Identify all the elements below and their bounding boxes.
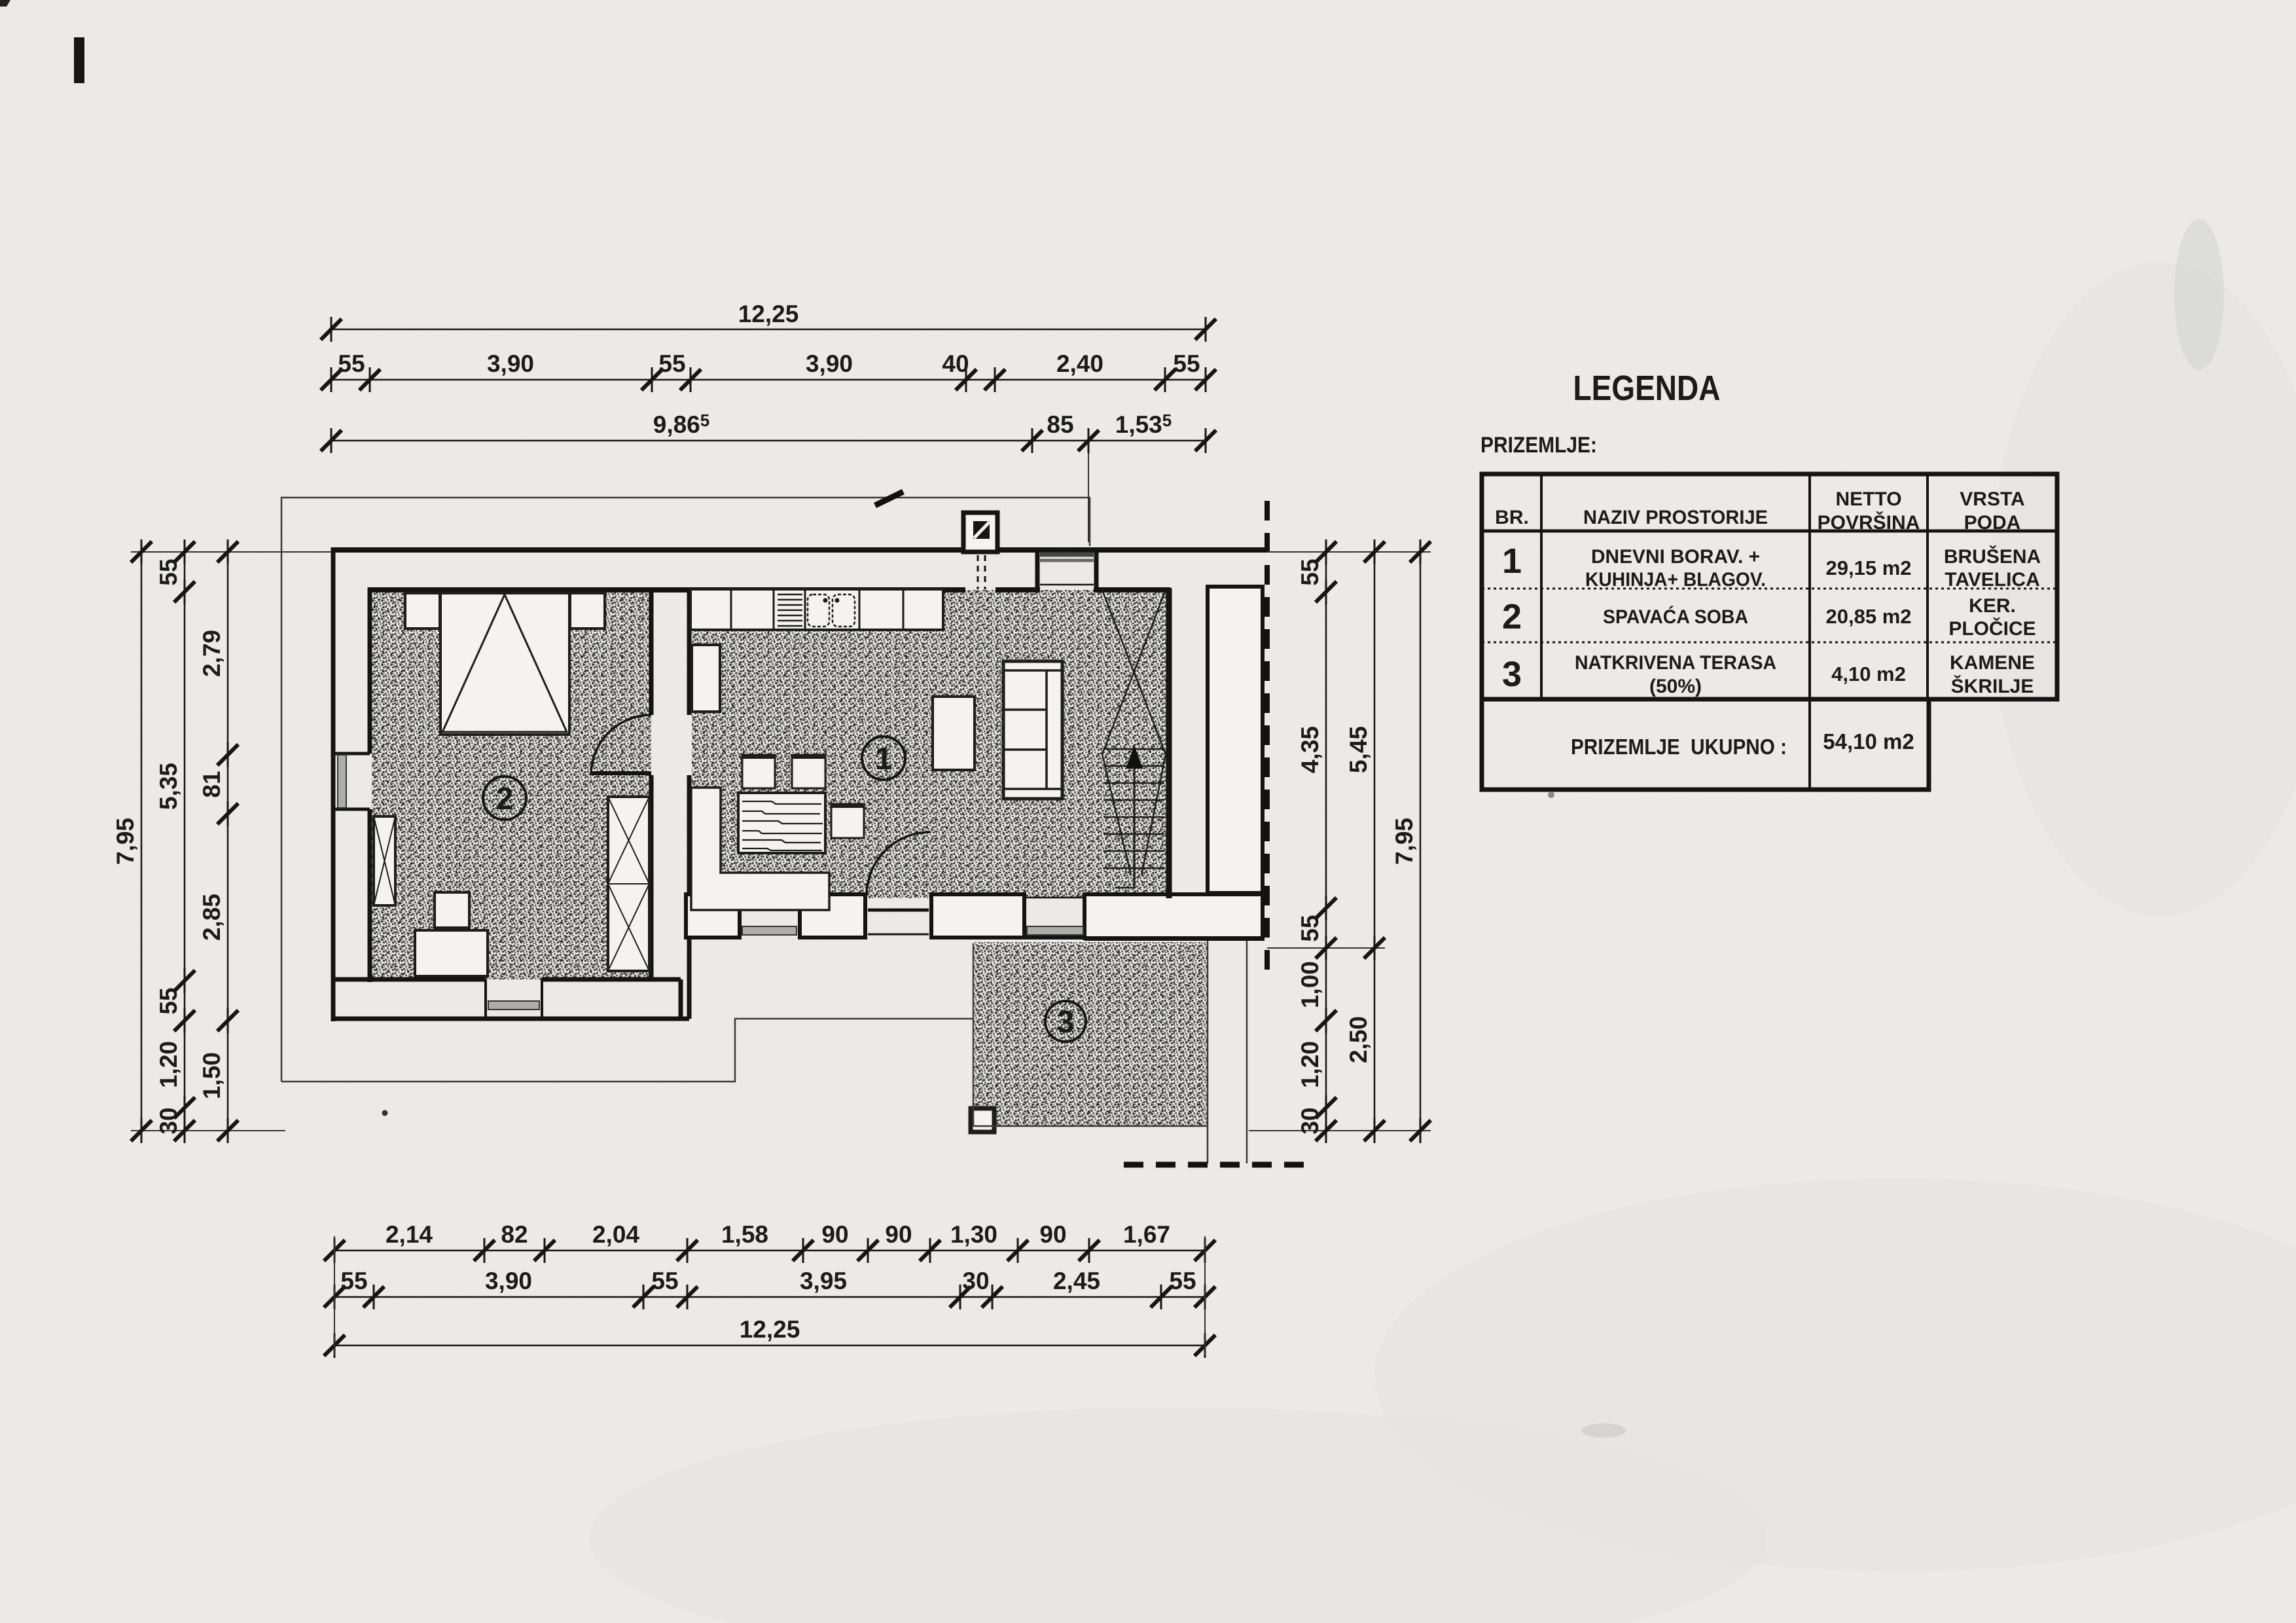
svg-text:55: 55 — [1173, 350, 1200, 377]
svg-text:2: 2 — [1502, 597, 1522, 636]
svg-text:90: 90 — [1039, 1221, 1066, 1248]
svg-text:KUHINJA+ BLAGOV.: KUHINJA+ BLAGOV. — [1585, 569, 1766, 591]
svg-text:30: 30 — [1297, 1107, 1323, 1134]
svg-text:55: 55 — [1169, 1267, 1196, 1294]
svg-text:55: 55 — [338, 350, 365, 377]
svg-text:BRUŠENA: BRUŠENA — [1944, 545, 2041, 568]
svg-text:2,85: 2,85 — [198, 894, 225, 941]
svg-text:3: 3 — [1502, 655, 1522, 694]
svg-text:3: 3 — [1057, 1005, 1075, 1040]
svg-text:55: 55 — [651, 1267, 678, 1294]
svg-text:55: 55 — [340, 1267, 367, 1294]
svg-text:2,79: 2,79 — [198, 630, 225, 677]
svg-text:2,50: 2,50 — [1345, 1016, 1372, 1063]
svg-text:2,14: 2,14 — [386, 1221, 433, 1248]
svg-text:2,04: 2,04 — [592, 1221, 639, 1248]
svg-text:5,45: 5,45 — [1345, 726, 1372, 773]
svg-text:PLOČICE: PLOČICE — [1948, 617, 2036, 640]
svg-text:BR.: BR. — [1495, 507, 1529, 528]
svg-text:85: 85 — [1047, 411, 1073, 438]
svg-text:NATKRIVENA TERASA: NATKRIVENA TERASA — [1575, 652, 1776, 674]
svg-text:3,90: 3,90 — [487, 350, 534, 377]
svg-text:12,25: 12,25 — [738, 301, 799, 327]
svg-text:5,35: 5,35 — [155, 763, 182, 810]
svg-text:55: 55 — [658, 350, 685, 377]
svg-text:1,58: 1,58 — [721, 1221, 768, 1248]
svg-text:90: 90 — [885, 1221, 912, 1248]
svg-text:4,35: 4,35 — [1297, 726, 1323, 773]
svg-text:PRIZEMLJE:: PRIZEMLJE: — [1480, 433, 1597, 458]
svg-text:7,95: 7,95 — [1391, 818, 1418, 865]
svg-text:SPAVAĆA SOBA: SPAVAĆA SOBA — [1603, 606, 1748, 628]
svg-text:1,50: 1,50 — [198, 1052, 225, 1099]
svg-text:NAZIV PROSTORIJE: NAZIV PROSTORIJE — [1583, 507, 1768, 528]
svg-text:29,15 m2: 29,15 m2 — [1826, 556, 1912, 579]
svg-text:POVRŠINA: POVRŠINA — [1818, 511, 1920, 534]
svg-text:12,25: 12,25 — [740, 1316, 800, 1343]
svg-text:1,30: 1,30 — [950, 1221, 997, 1248]
svg-text:1: 1 — [875, 742, 893, 776]
svg-text:90: 90 — [821, 1221, 848, 1248]
svg-text:2,40: 2,40 — [1056, 350, 1103, 377]
svg-text:3,90: 3,90 — [806, 350, 853, 377]
svg-text:3,90: 3,90 — [485, 1267, 532, 1294]
svg-text:7,95: 7,95 — [112, 818, 139, 865]
svg-text:82: 82 — [501, 1221, 528, 1248]
svg-text:30: 30 — [962, 1267, 989, 1294]
svg-text:KER.: KER. — [1969, 595, 2016, 617]
svg-text:81: 81 — [198, 771, 225, 797]
svg-text:2: 2 — [496, 782, 514, 816]
svg-text:55: 55 — [155, 987, 182, 1014]
svg-text:KAMENE: KAMENE — [1950, 652, 2035, 674]
svg-text:VRSTA: VRSTA — [1960, 488, 2024, 510]
svg-text:4,10 m2: 4,10 m2 — [1831, 663, 1906, 685]
svg-text:1,67: 1,67 — [1123, 1221, 1170, 1248]
svg-text:(50%): (50%) — [1649, 676, 1702, 697]
svg-text:PRIZEMLJE UKUPNO :: PRIZEMLJE UKUPNO : — [1571, 735, 1787, 759]
svg-text:PODA: PODA — [1964, 512, 2021, 534]
svg-text:54,10 m2: 54,10 m2 — [1823, 729, 1914, 754]
svg-text:55: 55 — [155, 558, 182, 585]
svg-text:1,20: 1,20 — [155, 1041, 182, 1088]
svg-text:20,85 m2: 20,85 m2 — [1826, 605, 1912, 628]
svg-text:30: 30 — [155, 1107, 182, 1134]
svg-text:LEGENDA: LEGENDA — [1573, 369, 1721, 408]
svg-text:40: 40 — [942, 350, 969, 377]
svg-text:1,20: 1,20 — [1297, 1041, 1323, 1088]
svg-text:2,45: 2,45 — [1053, 1267, 1100, 1294]
svg-text:3,95: 3,95 — [800, 1267, 847, 1294]
svg-text:DNEVNI BORAV. +: DNEVNI BORAV. + — [1591, 546, 1760, 568]
svg-text:55: 55 — [1297, 915, 1323, 941]
svg-text:NETTO: NETTO — [1835, 488, 1901, 510]
svg-text:ŠKRILJE: ŠKRILJE — [1951, 675, 2034, 697]
svg-text:1: 1 — [1502, 541, 1522, 581]
svg-text:1,00: 1,00 — [1297, 961, 1323, 1008]
svg-text:55: 55 — [1297, 558, 1323, 585]
svg-text:TAVELICA: TAVELICA — [1945, 569, 2040, 591]
